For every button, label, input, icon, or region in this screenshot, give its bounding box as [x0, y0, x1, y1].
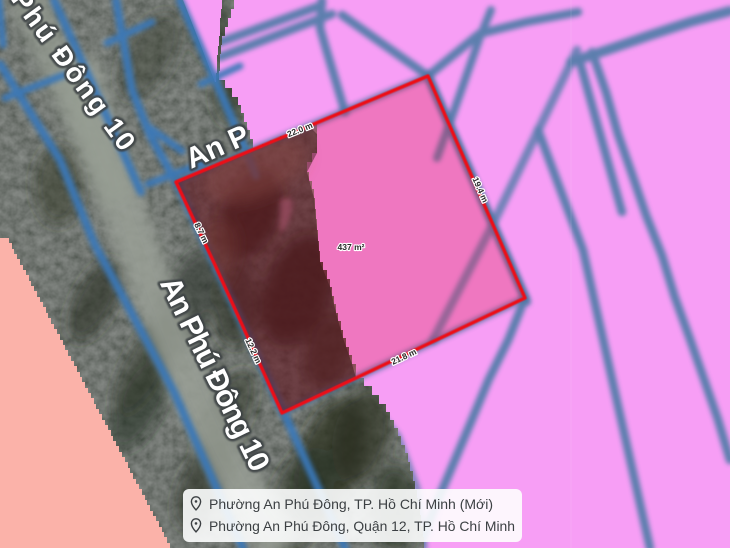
- svg-text:Phường An Phú Đông, TP. Hồ Chí: Phường An Phú Đông, TP. Hồ Chí Minh (Mới…: [209, 496, 493, 512]
- svg-text:437 m²: 437 m²: [338, 242, 365, 252]
- svg-text:Phường An Phú Đông, Quận 12, T: Phường An Phú Đông, Quận 12, TP. Hồ Chí …: [209, 518, 515, 534]
